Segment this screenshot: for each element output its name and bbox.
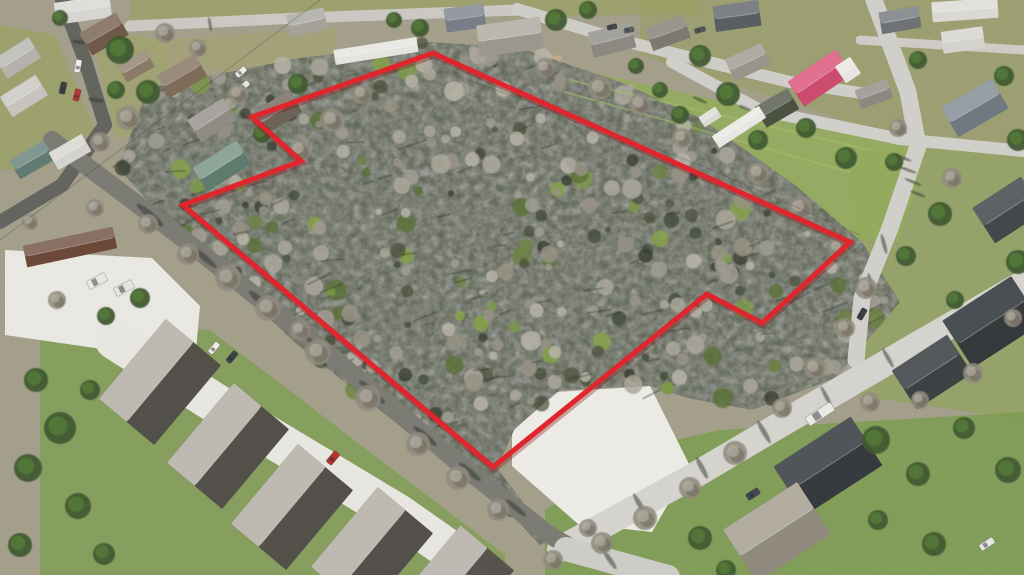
aerial-photo-canvas — [0, 0, 1024, 575]
photo-grain-overlay — [0, 0, 1024, 575]
aerial-photo — [0, 0, 1024, 575]
